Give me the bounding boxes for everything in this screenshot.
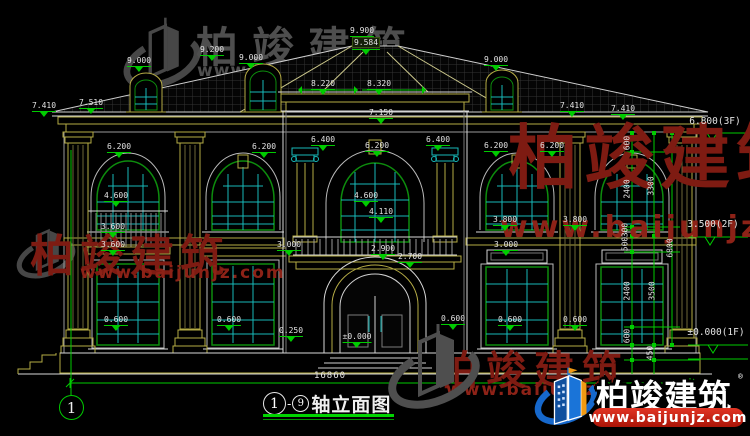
dim-label: 7.410 [32,101,56,117]
dim-label: 3.800 [563,215,587,231]
title-underline [263,414,394,417]
dim-label: 6.400 [311,135,335,151]
cad-elevation-drawing: 柏竣建筑 www.baijunjz.com [0,0,750,436]
dim-label: 0.600 [498,315,522,331]
dim-label: 500 [620,237,629,251]
dim-label: 6800 [665,238,674,257]
dim-label: 3300 [646,176,655,195]
drawing-title: 1 - 9 轴立面图 [263,390,391,417]
dim-label: 7.410 [560,101,584,117]
baijun-logo: 柏竣建筑 ® www.baijunjz.com [534,362,750,436]
dim-label: 8.220 [311,79,335,95]
dim-label: 4.110 [369,207,393,223]
dim-label: 600 [622,136,631,150]
dim-label: 6.200 [540,141,564,157]
title-dash: - [287,397,291,411]
dim-label: 0.250 [279,326,303,342]
dim-label: 3.600 [101,222,125,238]
dim-label: 6.200 [107,142,131,158]
dim-label: ±0.000 [343,332,372,348]
dim-label: 7.150 [369,108,393,124]
dim-label: 9.584 [352,37,380,55]
dim-label: 0.600 [563,315,587,331]
dim-label: 3.000 [494,240,518,256]
dim-label: 9.000 [239,53,263,69]
dim-label: 4.600 [354,191,378,207]
axis-circle-from: 1 [263,392,286,415]
dim-label: 3.500(2F) [687,220,738,231]
dim-label: 9.000 [127,56,151,72]
logo-url-band: www.baijunjz.com [592,408,744,427]
dim-label: 8.320 [367,79,391,95]
dim-label: 6.800(3F) [689,117,740,128]
dim-label: 600 [622,329,631,343]
dim-label: 300 [620,223,629,237]
dim-label: 3.000 [277,240,301,256]
axis-circle-to: 9 [292,395,309,412]
dim-label: 4.600 [104,191,128,207]
dim-label: 2.900 [371,244,395,260]
dim-label: 2400 [622,179,631,198]
dim-label: 2400 [622,281,631,300]
dim-label: 2.700 [398,252,422,268]
title-text: 轴立面图 [311,390,391,417]
dim-label: 0.600 [441,314,465,330]
title-underline-thin [263,419,394,420]
logo-registered-mark: ® [738,372,743,381]
dim-label: 9.200 [200,45,224,61]
dim-label: 0.600 [217,315,241,331]
dim-label: 7.510 [79,98,103,114]
dim-label: 6.200 [365,141,389,157]
dim-label: ±0.000(1F) [687,328,744,339]
dim-label: 7.410 [611,104,635,120]
dim-label: 450 [645,346,654,360]
dim-label: 3500 [647,281,656,300]
dim-label: 6.200 [484,141,508,157]
dim-label: 6.200 [252,142,276,158]
axis-bubble-1: 1 [59,395,84,420]
dim-label: 16860 [314,371,346,381]
dim-label: 9.000 [484,55,508,71]
dim-label: 3.600 [101,240,125,256]
dim-label: 3.800 [493,215,517,231]
dim-label: 0.600 [104,315,128,331]
dim-label: 6.400 [426,135,450,151]
